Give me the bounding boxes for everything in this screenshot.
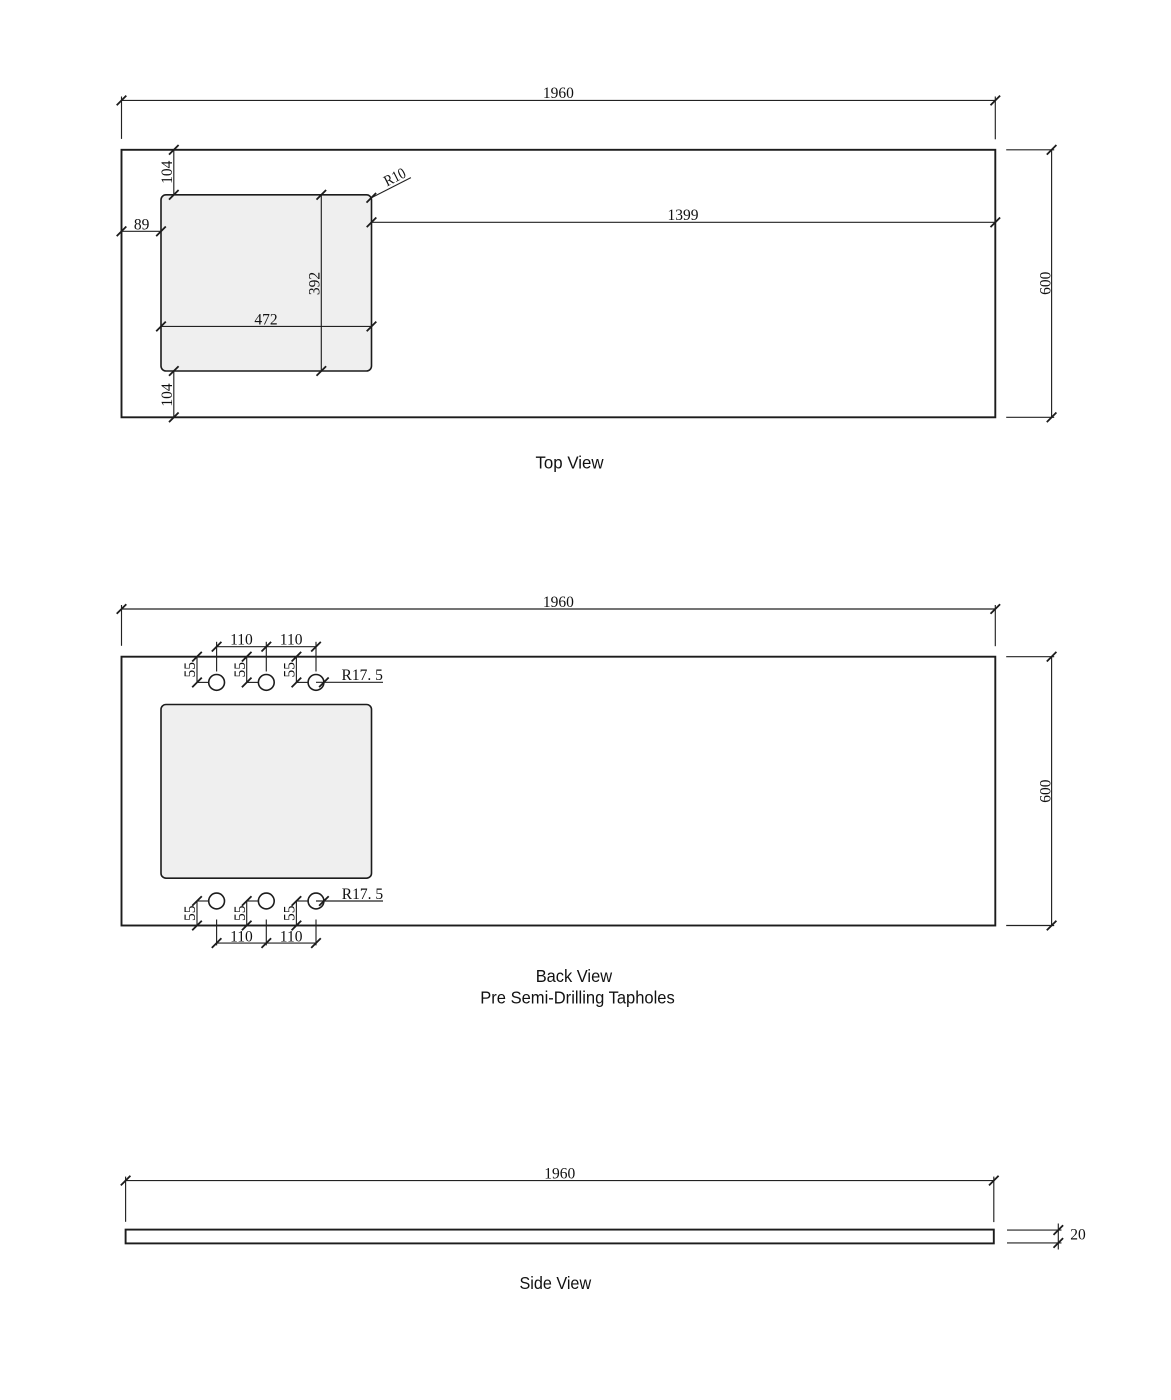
svg-text:55: 55: [232, 662, 249, 678]
svg-text:110: 110: [230, 632, 253, 649]
svg-text:600: 600: [1038, 779, 1055, 803]
svg-text:Top View: Top View: [536, 453, 604, 473]
svg-text:R17. 5: R17. 5: [342, 667, 384, 684]
svg-text:1399: 1399: [668, 207, 699, 224]
svg-text:Side View: Side View: [519, 1273, 591, 1293]
svg-text:472: 472: [254, 311, 277, 328]
svg-text:55: 55: [182, 662, 199, 678]
svg-text:55: 55: [182, 905, 199, 921]
svg-text:392: 392: [306, 272, 323, 295]
svg-text:1960: 1960: [543, 594, 574, 611]
svg-text:104: 104: [159, 160, 176, 184]
svg-text:55: 55: [282, 662, 299, 678]
svg-text:89: 89: [134, 216, 150, 233]
svg-text:R17. 5: R17. 5: [342, 886, 384, 903]
svg-text:Pre Semi-Drilling Tapholes: Pre Semi-Drilling Tapholes: [480, 988, 675, 1008]
svg-text:Back View: Back View: [536, 966, 613, 986]
svg-text:1960: 1960: [544, 1165, 575, 1182]
svg-text:104: 104: [159, 383, 176, 407]
svg-text:110: 110: [280, 632, 303, 649]
svg-text:55: 55: [282, 905, 299, 921]
svg-text:110: 110: [280, 928, 303, 945]
svg-text:600: 600: [1038, 271, 1055, 295]
svg-text:55: 55: [232, 905, 249, 921]
svg-text:20: 20: [1070, 1226, 1086, 1243]
svg-text:110: 110: [230, 928, 253, 945]
svg-text:1960: 1960: [543, 85, 574, 102]
